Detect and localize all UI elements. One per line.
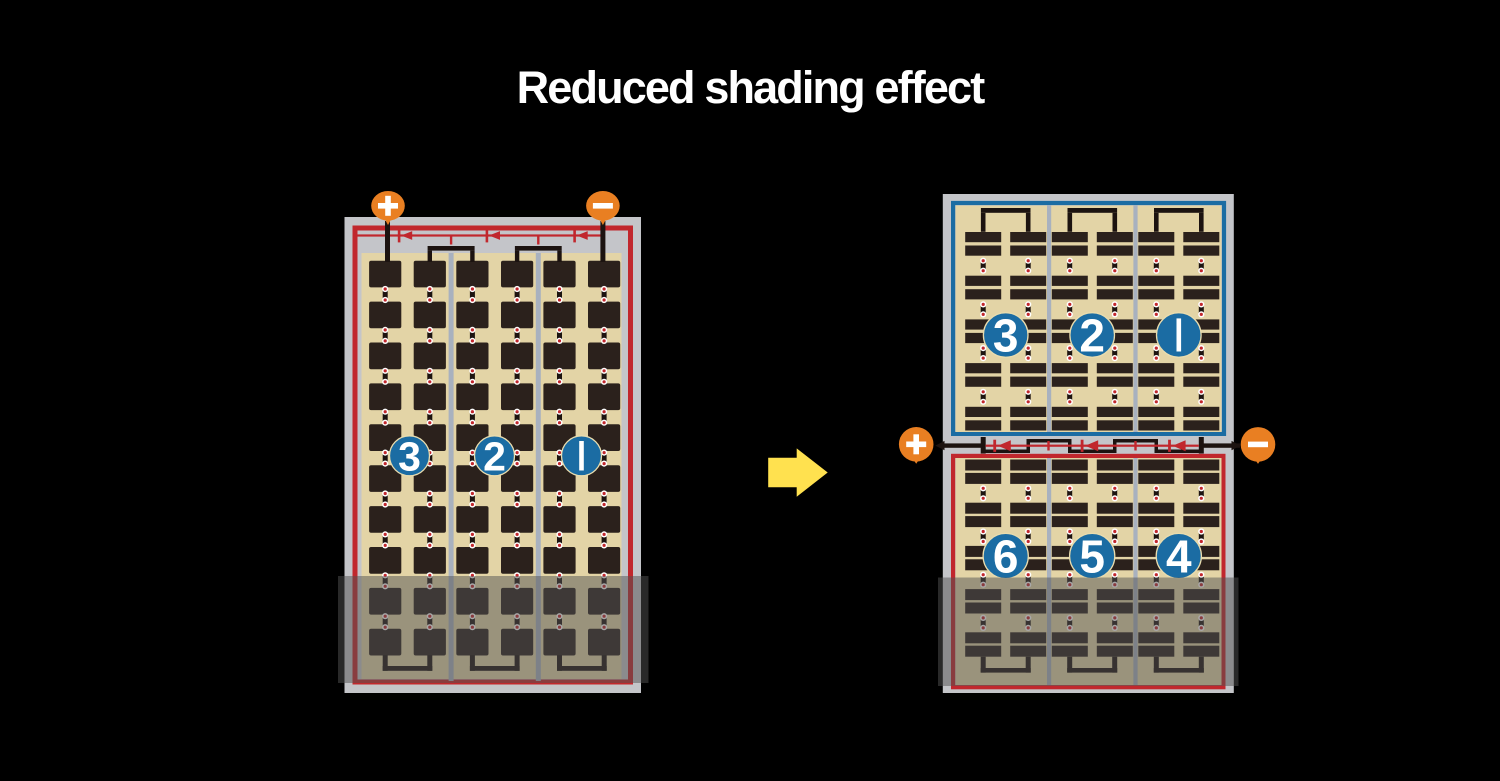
svg-text:4: 4 [1166,531,1192,583]
svg-text:3: 3 [398,434,421,480]
svg-text:5: 5 [1079,531,1105,583]
svg-text:6: 6 [993,531,1019,583]
svg-text:3: 3 [993,310,1019,362]
svg-text:2: 2 [1079,310,1105,362]
svg-text:2: 2 [483,434,506,480]
svg-text:Reduced shading effect: Reduced shading effect [517,62,986,113]
